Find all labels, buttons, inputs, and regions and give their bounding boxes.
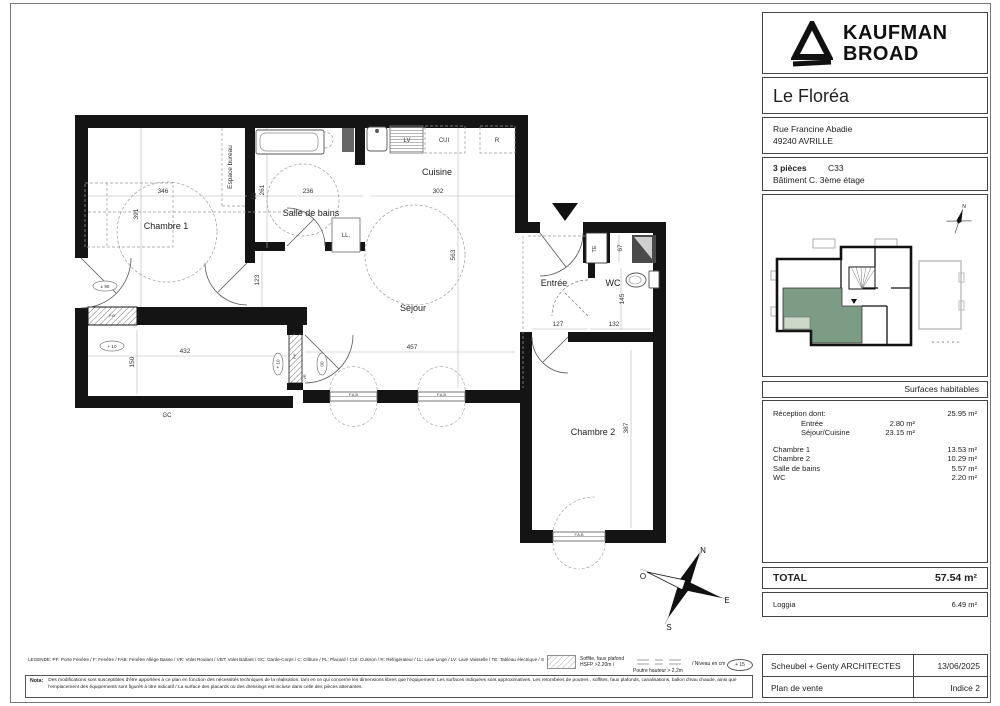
unit-rooms: 3 pièces xyxy=(773,163,807,173)
label-gc: GC xyxy=(163,413,173,419)
dim-55: 55 xyxy=(251,192,258,200)
soffite-label-2: HSFP >2,20m / xyxy=(580,662,624,668)
dim-123: 123 xyxy=(254,274,261,285)
dim-261: 261 xyxy=(259,184,266,195)
row-mid xyxy=(860,454,915,464)
dim-563: 563 xyxy=(450,249,457,260)
label-fab-1: F.A.B xyxy=(349,393,359,397)
room-label-bureau: Espace bureau xyxy=(227,145,234,189)
dimension-lines xyxy=(88,128,651,528)
key-plan: N xyxy=(763,195,987,376)
dashed-guides xyxy=(85,126,588,388)
row-label: Chambre 2 xyxy=(773,454,860,464)
table-row: WC 2.20 m² xyxy=(763,473,987,483)
dim-457: 457 xyxy=(407,344,418,351)
project-title: Le Floréa xyxy=(773,86,849,107)
total-box: TOTAL 57.54 m² xyxy=(762,567,988,589)
row-label: Réception dont: xyxy=(773,409,860,419)
surfaces-table: Réception dont: 25.95 m² Entrée 2.80 m² … xyxy=(762,400,988,563)
label-fab-2: F.A.B xyxy=(437,393,447,397)
poutre-label: Poutre hauteur > 2,2m xyxy=(633,668,683,674)
address-line2: 49240 AVRILLE xyxy=(773,136,833,146)
compass-rose: N O E S xyxy=(640,546,730,632)
unit-box: 3 pièces C33 Bâtiment C. 3ème étage xyxy=(762,157,988,191)
total-label: TOTAL xyxy=(773,572,935,584)
legend-text: LEGENDE: PF: Porte Fenêtre / F: Fenêtre … xyxy=(28,657,544,662)
row-label: Séjour/Cuisine xyxy=(773,428,860,438)
brand-line1: KAUFMAN xyxy=(843,23,948,44)
loggia-label: Loggia xyxy=(773,600,915,610)
architect-name: Scheubel + Genty ARCHITECTES xyxy=(763,655,914,677)
label-r: R xyxy=(495,138,500,144)
unit-location: Bâtiment C. 3ème étage xyxy=(773,175,865,185)
svg-text:+ 10: + 10 xyxy=(107,344,117,349)
room-label-sdb: Salle de bains xyxy=(283,208,340,218)
row-value: 25.95 m² xyxy=(915,409,977,419)
logo-box: KAUFMAN BROAD xyxy=(762,12,988,74)
svg-text:+ 10: + 10 xyxy=(276,359,281,369)
key-plan-compass-icon: N xyxy=(944,204,975,237)
compass-e: E xyxy=(724,596,729,605)
row-mid: 2.80 m² xyxy=(860,419,915,429)
row-value: 13.53 m² xyxy=(915,445,977,455)
dim-387: 387 xyxy=(623,422,630,433)
dim-145: 145 xyxy=(619,293,626,304)
loggia-value: 6.49 m² xyxy=(915,600,977,610)
nota-line2: l'emplacement des équipements sont figur… xyxy=(48,685,736,692)
label-ll: LL. xyxy=(342,233,351,239)
svg-text:00: 00 xyxy=(320,361,325,367)
project-title-box: Le Floréa xyxy=(762,77,988,114)
unit-number: C33 xyxy=(828,163,844,173)
svg-text:± 90: ± 90 xyxy=(101,284,110,289)
row-label: Entrée xyxy=(773,419,860,429)
plan-indice: Indice 2 xyxy=(914,677,988,698)
label-te: TE xyxy=(592,245,598,252)
niveau-badge: + 15 xyxy=(727,659,753,671)
table-row: Séjour/Cuisine 23.15 m² xyxy=(763,428,987,438)
room-label-chambre2: Chambre 2 xyxy=(571,427,616,437)
key-plan-compass-n: N xyxy=(962,204,966,210)
label-fab-3: F.A.B xyxy=(574,533,584,537)
nota-line1: Des modifications sont susceptibles d'êt… xyxy=(48,678,736,685)
loggia-highlight xyxy=(784,317,810,329)
title-block: Scheubel + Genty ARCHITECTES 13/06/2025 … xyxy=(762,654,988,698)
table-row: Réception dont: 25.95 m² xyxy=(763,409,987,419)
compass-o: O xyxy=(640,572,646,581)
surfaces-header-box: Surfaces habitables xyxy=(762,381,988,398)
address-box: Rue Francine Abadie 49240 AVRILLE xyxy=(762,117,988,154)
poutre-symbol-icon xyxy=(637,658,681,666)
soffite-symbol-icon xyxy=(547,655,576,669)
row-label: Salle de bains xyxy=(773,464,860,474)
surfaces-title: Surfaces habitables xyxy=(763,382,987,394)
dim-346: 346 xyxy=(158,188,169,195)
room-label-sejour: Séjour xyxy=(400,303,426,313)
row-label: Chambre 1 xyxy=(773,445,860,455)
plan-date: 13/06/2025 xyxy=(914,655,988,677)
table-row: Entrée 2.80 m² xyxy=(763,419,987,429)
label-fb: F.B xyxy=(109,314,115,318)
floor-plan: Chambre 1 Salle de bains Cuisine Séjour … xyxy=(0,0,760,706)
label-vr: VR xyxy=(303,374,307,380)
row-mid xyxy=(860,473,915,483)
kaufman-broad-logo-icon xyxy=(791,21,833,67)
dim-432: 432 xyxy=(180,348,191,355)
label-lv: LV xyxy=(404,138,411,144)
dim-302: 302 xyxy=(433,188,444,195)
room-label-chambre1: Chambre 1 xyxy=(144,221,189,231)
row-mid xyxy=(860,409,915,419)
dim-391: 391 xyxy=(133,208,140,219)
row-label: WC xyxy=(773,473,860,483)
dim-67: 67 xyxy=(617,244,624,252)
row-mid xyxy=(860,445,915,455)
doc-type: Plan de vente xyxy=(763,677,914,698)
kitchen-duct xyxy=(342,128,354,152)
table-row: Salle de bains 5.57 m² xyxy=(763,464,987,474)
brand-line2: BROAD xyxy=(843,44,948,65)
niveau-label: / Niveau en cm xyxy=(692,661,725,667)
room-label-cuisine: Cuisine xyxy=(422,167,452,177)
row-value xyxy=(915,419,977,429)
room-label-entree: Entrée xyxy=(541,278,568,288)
dim-127: 127 xyxy=(553,321,564,328)
fixtures xyxy=(256,126,659,288)
total-value: 57.54 m² xyxy=(935,572,977,584)
nota-label: Nota: xyxy=(30,678,43,695)
label-cui: CUI xyxy=(439,138,450,144)
row-mid: 23.15 m² xyxy=(860,428,915,438)
key-plan-box: N xyxy=(762,194,988,377)
entry-arrow-icon xyxy=(552,203,578,221)
compass-s: S xyxy=(666,623,671,632)
dim-150: 150 xyxy=(129,356,136,367)
row-value: 2.20 m² xyxy=(915,473,977,483)
plan-sheet: Chambre 1 Salle de bains Cuisine Séjour … xyxy=(0,0,1000,706)
label-pf: P.F xyxy=(293,353,297,359)
dim-236: 236 xyxy=(303,188,314,195)
address-line1: Rue Francine Abadie xyxy=(773,124,852,134)
row-value: 10.29 m² xyxy=(915,454,977,464)
row-value xyxy=(915,428,977,438)
fab-windows xyxy=(330,392,605,541)
table-row: Chambre 2 10.29 m² xyxy=(763,454,987,464)
room-label-wc: WC xyxy=(606,278,621,288)
dim-132: 132 xyxy=(609,321,620,328)
loggia-box: Loggia 6.49 m² xyxy=(762,592,988,617)
compass-n: N xyxy=(700,546,706,555)
row-value: 5.57 m² xyxy=(915,464,977,474)
row-mid xyxy=(860,464,915,474)
nota-box: Nota: Des modifications sont susceptible… xyxy=(25,675,753,698)
table-row: Chambre 1 13.53 m² xyxy=(763,445,987,455)
